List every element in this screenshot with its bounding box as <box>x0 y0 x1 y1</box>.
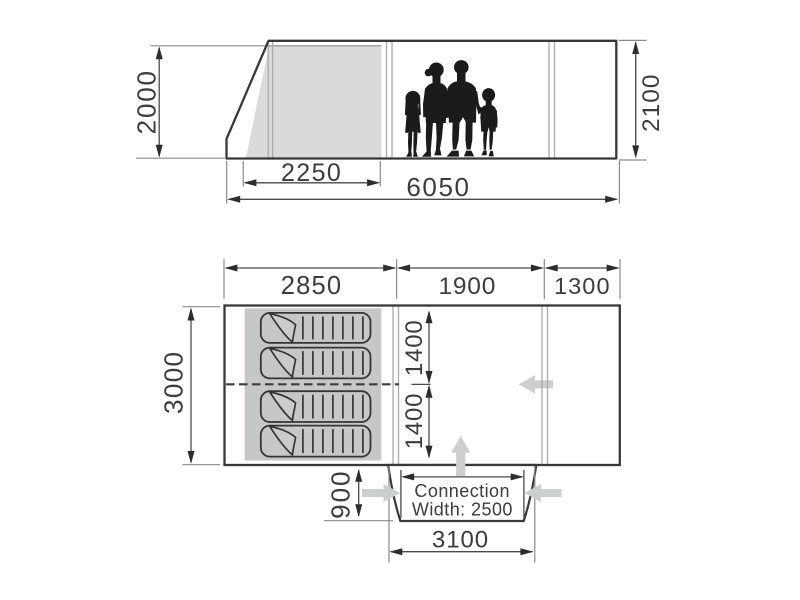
svg-text:2100: 2100 <box>638 74 665 133</box>
svg-text:1400: 1400 <box>401 320 428 377</box>
svg-text:2850: 2850 <box>281 272 343 300</box>
svg-text:1900: 1900 <box>438 273 496 300</box>
svg-text:900: 900 <box>326 470 356 519</box>
svg-text:1300: 1300 <box>554 273 611 299</box>
svg-text:Width: 2500: Width: 2500 <box>412 500 513 520</box>
svg-text:3000: 3000 <box>159 351 189 414</box>
svg-text:Connection: Connection <box>414 481 510 501</box>
svg-text:6050: 6050 <box>406 172 470 202</box>
svg-text:3100: 3100 <box>432 527 489 554</box>
svg-text:2000: 2000 <box>132 69 162 134</box>
svg-text:1400: 1400 <box>401 393 428 450</box>
svg-text:2250: 2250 <box>281 159 342 187</box>
